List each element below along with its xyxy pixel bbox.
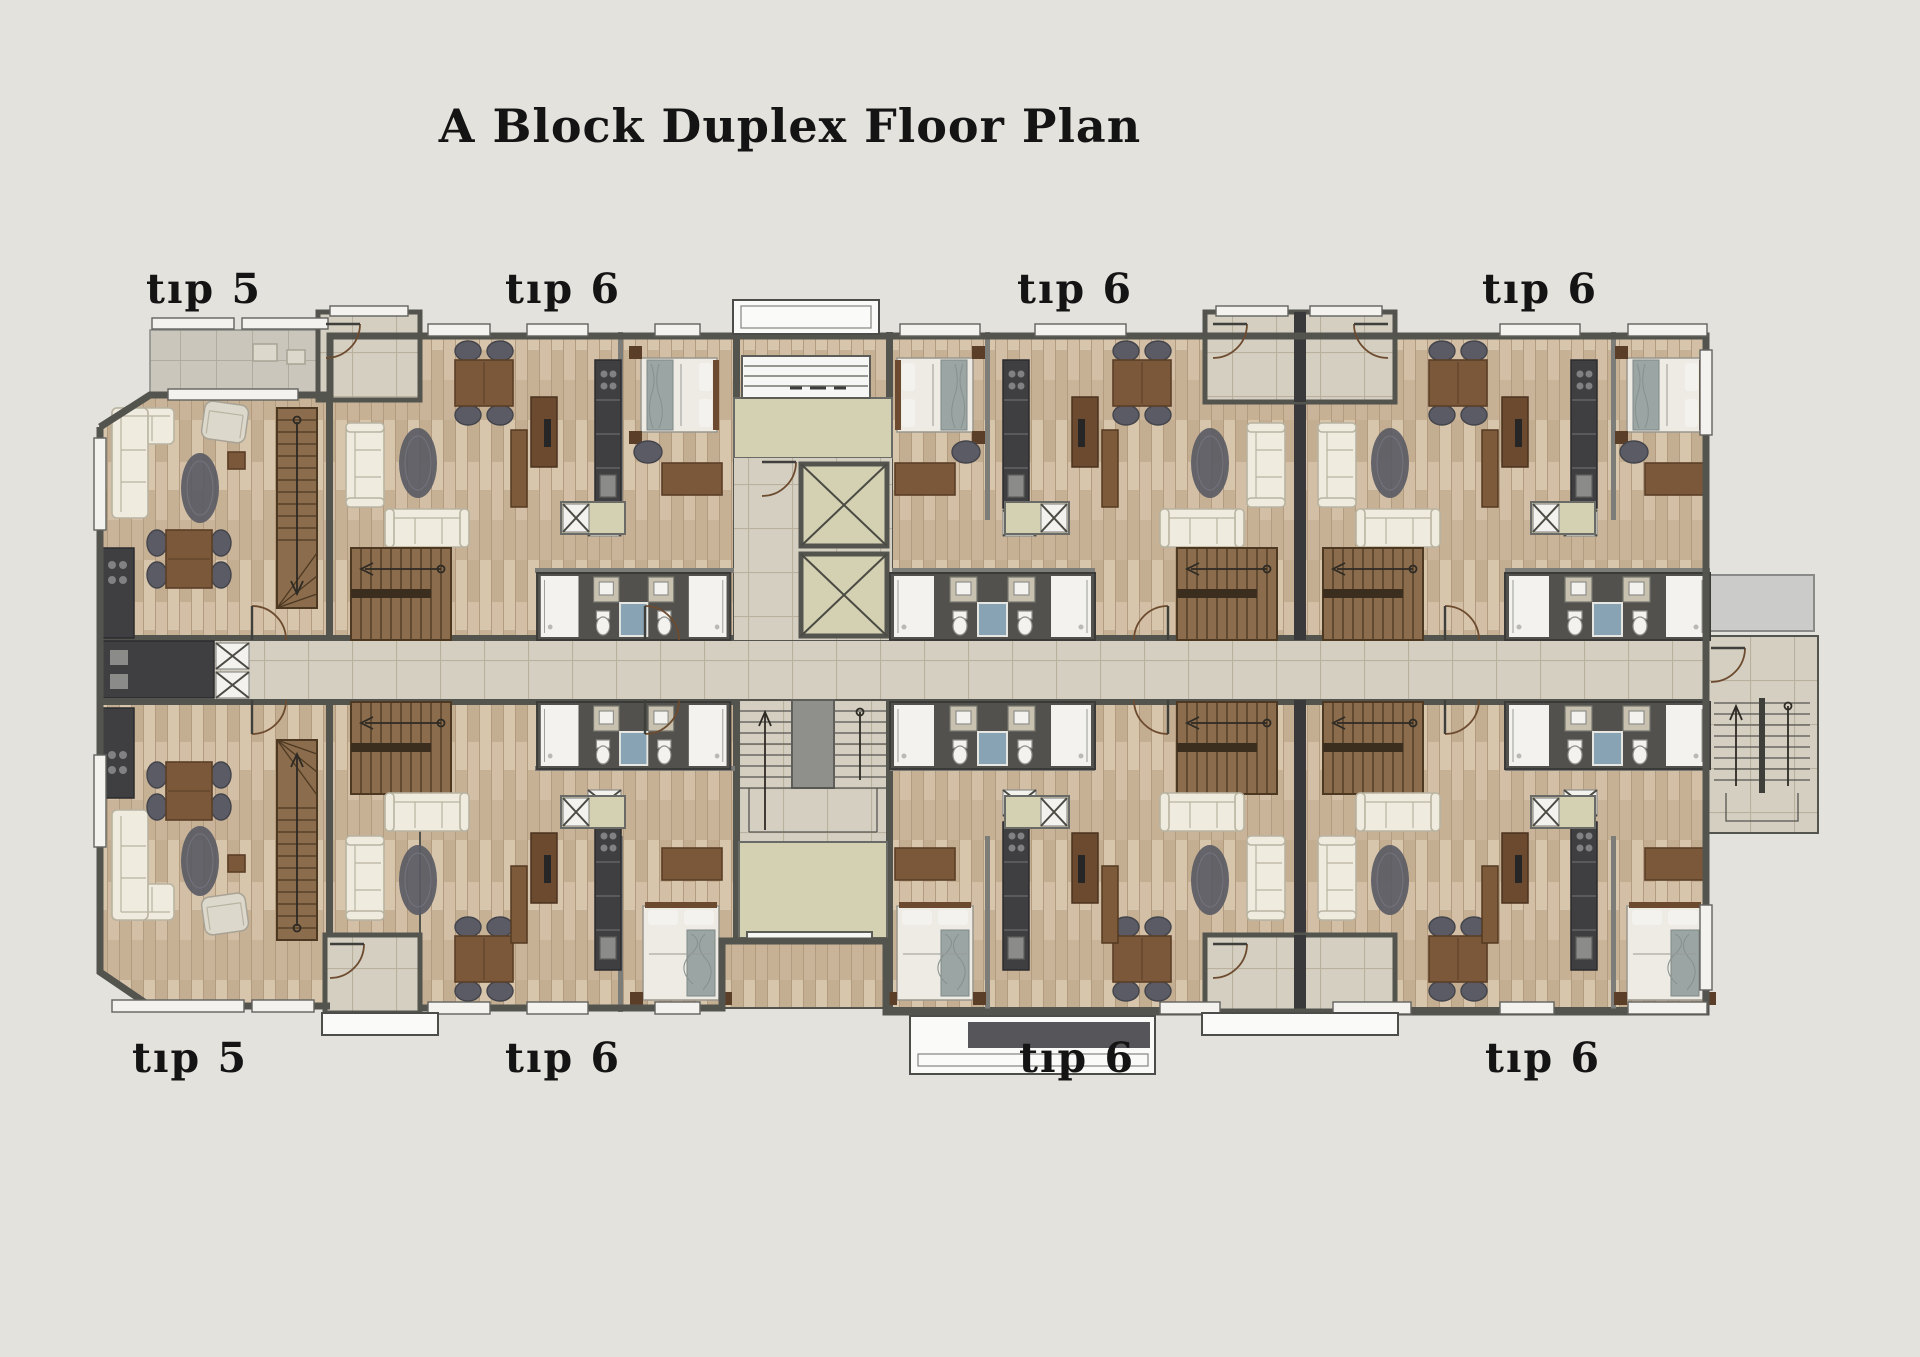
- bed: [629, 346, 719, 444]
- entrance-canopy-top: [733, 300, 879, 334]
- kitchen-counter: [1571, 360, 1597, 508]
- entrance-steps: [742, 356, 870, 398]
- window: [152, 318, 234, 329]
- window: [1700, 350, 1712, 435]
- bathroom: [890, 573, 1095, 640]
- kitchen-island: [1005, 502, 1069, 534]
- central-corridor: [100, 640, 1712, 700]
- kitchen-island: [1531, 796, 1595, 828]
- window: [428, 324, 490, 336]
- balcony-table: [287, 350, 305, 364]
- unit-label-bottom-tip6-3: tıp 6: [1485, 1034, 1601, 1082]
- window: [900, 324, 980, 336]
- right-stair-balcony: [1708, 575, 1814, 631]
- unit-label-top-tip5: tıp 5: [146, 265, 262, 313]
- entrance-landing: [734, 398, 892, 458]
- rug: [1371, 845, 1409, 915]
- window: [1628, 1002, 1707, 1014]
- window: [655, 324, 700, 336]
- bathroom: [890, 702, 1095, 769]
- window: [1216, 306, 1288, 316]
- rug: [181, 453, 219, 523]
- window: [1500, 324, 1580, 336]
- window: [168, 389, 298, 400]
- bedroom-chair: [634, 441, 662, 463]
- kitchen-counter: [595, 360, 621, 508]
- window: [94, 438, 106, 530]
- bottom-entrance-landing: [739, 842, 887, 938]
- bed: [630, 902, 732, 1005]
- rug: [1191, 428, 1229, 498]
- duplex-stair: [1323, 702, 1423, 794]
- unit-label-top-tip6-1: tıp 6: [505, 265, 621, 313]
- window: [94, 755, 106, 847]
- unit-label-bottom-tip5: tıp 5: [132, 1034, 248, 1082]
- vestibule-canopy: [1202, 1013, 1398, 1035]
- vestibule: [325, 935, 420, 1013]
- window: [527, 324, 588, 336]
- side-table: [228, 855, 245, 872]
- window: [1310, 306, 1382, 316]
- window: [655, 1002, 700, 1014]
- shaft: [216, 672, 249, 698]
- right-stairwell: [1706, 575, 1818, 833]
- page-title: A Block Duplex Floor Plan: [438, 99, 1141, 153]
- kitchen-counter: [595, 822, 621, 970]
- window: [252, 1000, 314, 1012]
- rug: [181, 826, 219, 896]
- rug: [1371, 428, 1409, 498]
- rug: [399, 428, 437, 498]
- window: [527, 1002, 588, 1014]
- rug: [399, 845, 437, 915]
- kitchen-counter: [102, 708, 134, 798]
- kitchen-island: [561, 502, 625, 534]
- sofa: [385, 509, 469, 547]
- sofa: [1247, 423, 1285, 507]
- armchair: [201, 892, 250, 936]
- balcony-chair: [253, 344, 277, 361]
- side-table: [228, 452, 245, 469]
- duplex-stair: [277, 740, 317, 940]
- wardrobe: [662, 463, 722, 495]
- duplex-stair: [1177, 702, 1277, 794]
- bathroom: [1505, 702, 1710, 769]
- wardrobe: [662, 848, 722, 880]
- kitchen-island: [1005, 796, 1069, 828]
- window: [112, 1000, 244, 1012]
- wardrobe: [895, 848, 955, 880]
- bed: [895, 346, 985, 444]
- kitchen-counter: [1003, 360, 1029, 508]
- sofa: [1160, 509, 1244, 547]
- duplex-stair: [1177, 548, 1277, 640]
- bedroom-chair: [1620, 441, 1648, 463]
- kitchen-island: [561, 796, 625, 828]
- sofa: [1247, 836, 1285, 920]
- kitchen-island: [1531, 502, 1595, 534]
- unit-label-bottom-tip6-2: tıp 6: [1019, 1034, 1135, 1082]
- kitchen-counter: [102, 548, 134, 638]
- window: [1700, 905, 1712, 990]
- core-staircase: [739, 700, 887, 842]
- elevator-shaft: [801, 464, 887, 546]
- unit-label-bottom-tip6-1: tıp 6: [505, 1034, 621, 1082]
- bed: [1615, 346, 1705, 444]
- sofa: [1318, 836, 1356, 920]
- shaft: [216, 643, 249, 669]
- sofa: [1318, 423, 1356, 507]
- sofa: [385, 793, 469, 831]
- unit-label-top-tip6-3: tıp 6: [1482, 265, 1598, 313]
- kitchen-counter: [1003, 822, 1029, 970]
- vestibule-canopy: [322, 1013, 438, 1035]
- window: [1500, 1002, 1554, 1014]
- window: [242, 318, 328, 329]
- kitchen-counter: [1571, 822, 1597, 970]
- elevator-shaft: [801, 554, 887, 636]
- wardrobe: [1645, 848, 1705, 880]
- wardrobe: [1645, 463, 1705, 495]
- sofa: [1160, 793, 1244, 831]
- sofa: [1356, 509, 1440, 547]
- fire-escape-staircase: [1706, 636, 1818, 833]
- bathroom: [1505, 573, 1710, 640]
- wardrobe: [895, 463, 955, 495]
- bathroom: [537, 702, 730, 769]
- sofa: [346, 836, 384, 920]
- bed: [884, 902, 986, 1005]
- duplex-stair: [1323, 548, 1423, 640]
- rug: [1191, 845, 1229, 915]
- floor-plan-page: A Block Duplex Floor Plan: [0, 0, 1920, 1357]
- sofa: [1356, 793, 1440, 831]
- duplex-stair: [351, 702, 451, 794]
- window: [330, 306, 408, 316]
- duplex-stair: [277, 408, 317, 608]
- bedroom-chair: [952, 441, 980, 463]
- service-niche: [102, 641, 214, 698]
- armchair: [201, 400, 250, 444]
- window: [1628, 324, 1707, 336]
- sofa: [346, 423, 384, 507]
- unit-label-top-tip6-2: tıp 6: [1017, 265, 1133, 313]
- window: [1035, 324, 1126, 336]
- floor-plan-canvas: A Block Duplex Floor Plan: [0, 0, 1920, 1357]
- bathroom: [537, 573, 730, 640]
- duplex-stair: [351, 548, 451, 640]
